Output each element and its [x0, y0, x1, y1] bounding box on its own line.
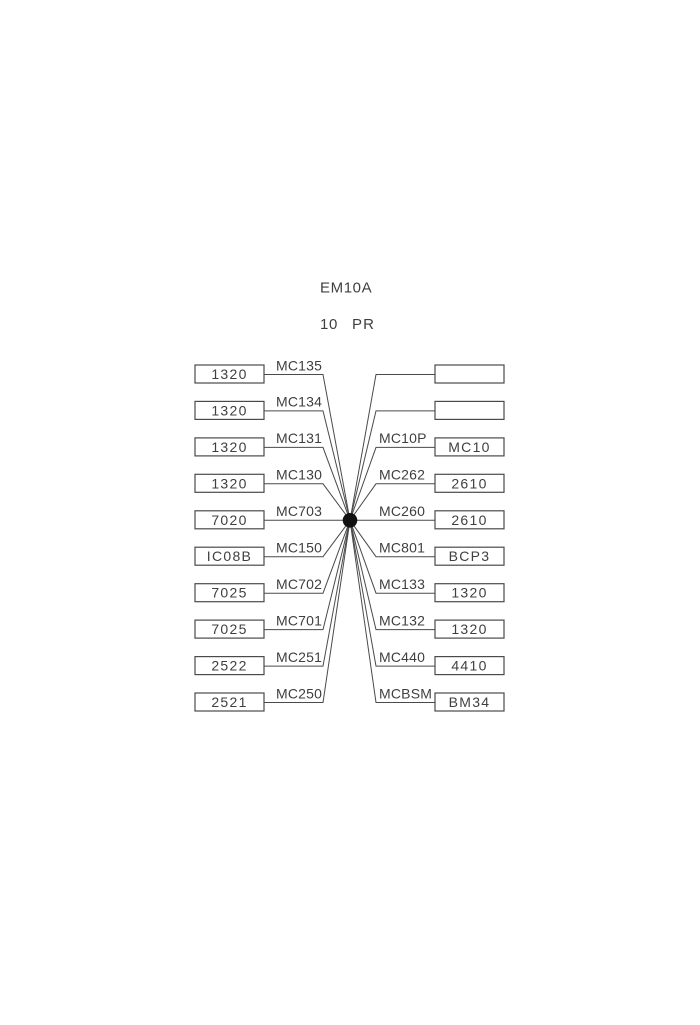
svg-text:MCBSM: MCBSM: [379, 685, 432, 701]
svg-text:MC135: MC135: [276, 357, 322, 373]
svg-text:MC250: MC250: [276, 685, 322, 701]
svg-text:MC131: MC131: [276, 430, 322, 446]
svg-text:1320: 1320: [451, 585, 487, 601]
svg-text:1320: 1320: [211, 439, 247, 455]
svg-text:MC130: MC130: [276, 467, 322, 483]
svg-text:10: 10: [320, 316, 338, 333]
svg-text:BM34: BM34: [449, 694, 491, 710]
svg-text:MC701: MC701: [276, 612, 322, 628]
svg-text:7025: 7025: [211, 585, 247, 601]
svg-text:MC262: MC262: [379, 467, 425, 483]
svg-text:1320: 1320: [211, 475, 247, 491]
svg-text:MC702: MC702: [276, 576, 322, 592]
svg-text:7020: 7020: [211, 512, 247, 528]
svg-text:PR: PR: [352, 316, 375, 333]
svg-text:MC133: MC133: [379, 576, 425, 592]
svg-text:MC801: MC801: [379, 540, 425, 556]
svg-text:MC134: MC134: [276, 394, 322, 410]
svg-text:MC132: MC132: [379, 612, 425, 628]
svg-text:IC08B: IC08B: [207, 548, 252, 564]
svg-text:4410: 4410: [451, 658, 487, 674]
svg-text:2522: 2522: [211, 658, 247, 674]
svg-text:MC251: MC251: [276, 649, 322, 665]
svg-text:MC440: MC440: [379, 649, 425, 665]
svg-text:BCP3: BCP3: [449, 548, 491, 564]
svg-text:2610: 2610: [451, 512, 487, 528]
svg-text:2610: 2610: [451, 475, 487, 491]
svg-text:MC703: MC703: [276, 503, 322, 519]
svg-text:MC10: MC10: [448, 439, 491, 455]
svg-text:MC10P: MC10P: [379, 430, 427, 446]
svg-text:EM10A: EM10A: [320, 279, 372, 296]
svg-text:MC150: MC150: [276, 540, 322, 556]
svg-text:MC260: MC260: [379, 503, 425, 519]
svg-text:7025: 7025: [211, 621, 247, 637]
svg-text:2521: 2521: [211, 694, 247, 710]
svg-text:1320: 1320: [451, 621, 487, 637]
svg-text:1320: 1320: [211, 402, 247, 418]
svg-text:1320: 1320: [211, 366, 247, 382]
